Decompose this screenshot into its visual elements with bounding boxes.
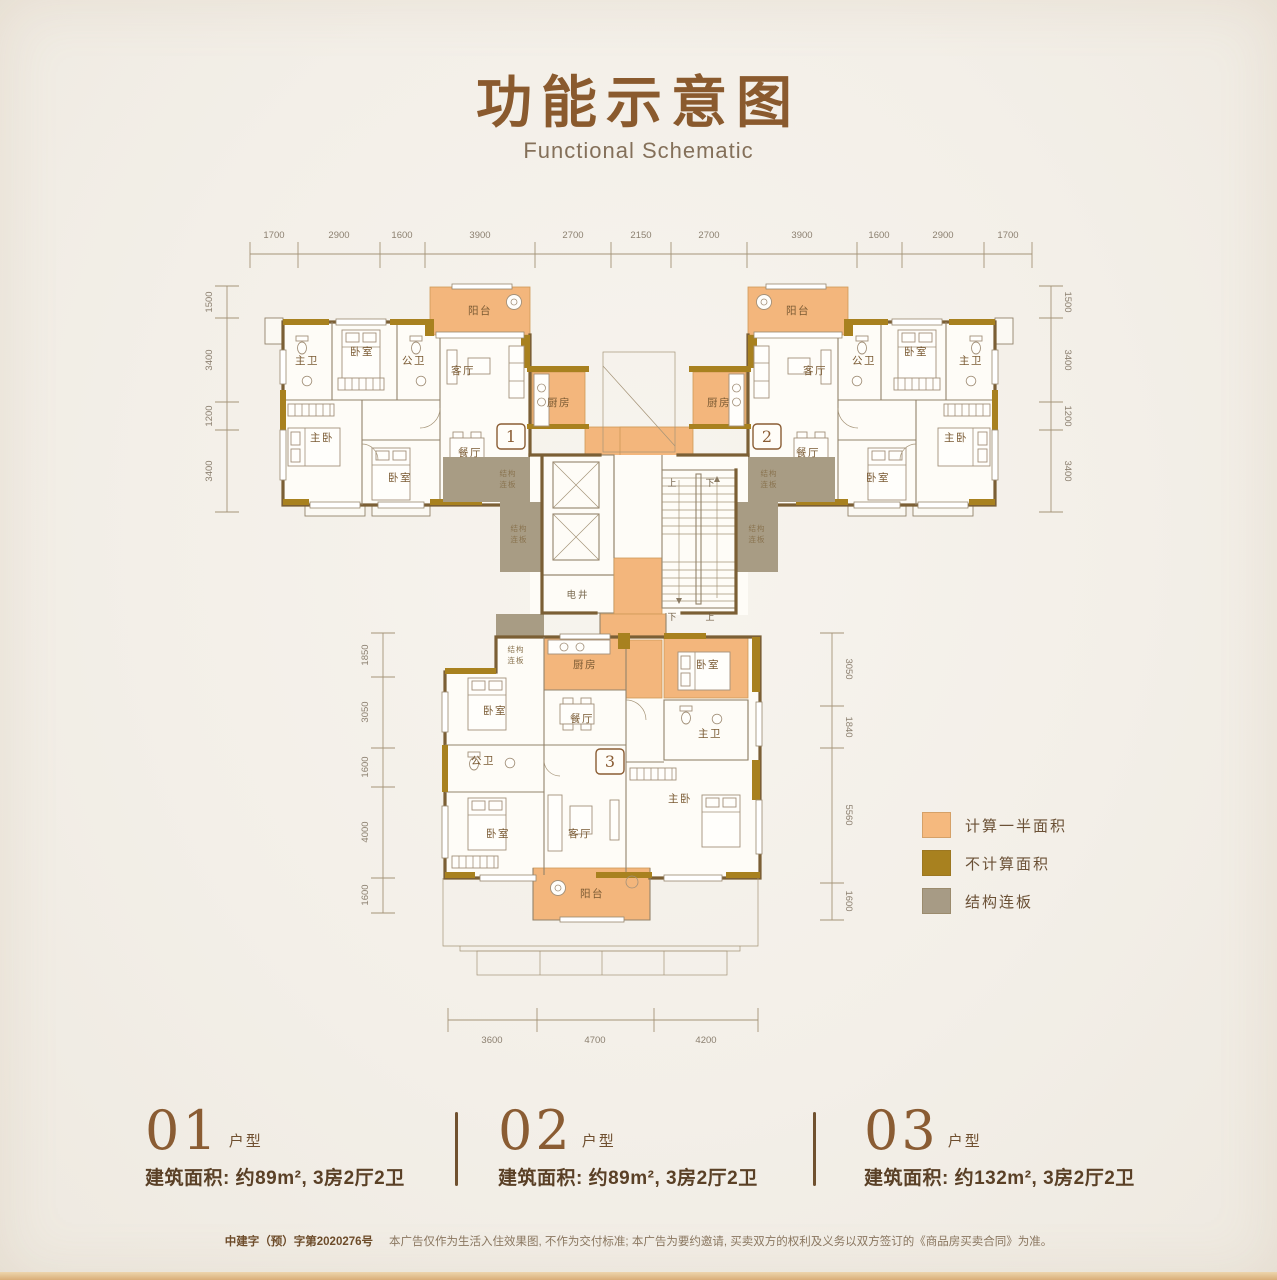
- svg-text:2900: 2900: [932, 230, 953, 241]
- unit-area-line: 建筑面积: 约89m², 3房2厅2卫: [145, 1163, 405, 1190]
- svg-text:公卫: 公卫: [402, 355, 426, 367]
- svg-text:3900: 3900: [469, 230, 490, 241]
- svg-text:1500: 1500: [204, 291, 215, 312]
- svg-text:3400: 3400: [1062, 460, 1073, 481]
- svg-text:2700: 2700: [562, 230, 583, 241]
- svg-text:客厅: 客厅: [568, 827, 592, 840]
- svg-text:1700: 1700: [263, 230, 284, 241]
- top-dimension-line: 1700 2900 1600 3900 2700 2150 2700 3900 …: [250, 230, 1032, 268]
- svg-text:3400: 3400: [1062, 349, 1073, 370]
- left-upper-dimension-line: 1500 3400 1200 3400: [204, 286, 239, 512]
- svg-text:厨房: 厨房: [573, 658, 597, 671]
- svg-text:连板: 连板: [511, 534, 528, 544]
- legend: 计算一半面积 不计算面积 结构连板: [922, 812, 1067, 926]
- right-upper-dimension-line: 1500 3400 1200 3400: [1039, 286, 1073, 512]
- unit-number: 03: [864, 1104, 939, 1158]
- svg-text:主卧: 主卧: [310, 431, 334, 444]
- svg-text:1840: 1840: [843, 716, 854, 737]
- svg-text:下: 下: [667, 612, 676, 622]
- svg-text:3400: 3400: [204, 349, 215, 370]
- svg-text:上: 上: [667, 478, 676, 488]
- legend-item-not-counted: 不计算面积: [922, 850, 1067, 876]
- half-area-swatch: [922, 812, 951, 838]
- unit-03-info: 03 户型 建筑面积: 约132m², 3房2厅2卫: [864, 1104, 1135, 1190]
- unit-type-suffix: 户型: [582, 1130, 616, 1151]
- unit-2-badge: 2: [753, 424, 781, 449]
- svg-text:主卧: 主卧: [668, 792, 692, 805]
- page: 功能示意图 Functional Schematic: [0, 0, 1277, 1280]
- unit-info-section: 01 户型 建筑面积: 约89m², 3房2厅2卫 02 户型 建筑面积: 约8…: [0, 1104, 1277, 1196]
- right-lower-dimension-line: 3050 1840 5560 1600: [820, 633, 854, 920]
- svg-text:1600: 1600: [360, 756, 371, 777]
- bottom-dimension-line: 3600 4700 4200: [448, 1008, 758, 1046]
- svg-text:3050: 3050: [843, 658, 854, 679]
- left-lower-dimension-line: 1850 3050 1600 4000 1600: [360, 633, 395, 913]
- svg-text:连板: 连板: [761, 479, 778, 489]
- svg-text:客厅: 客厅: [803, 364, 827, 377]
- disclaimer: 中建字（预）字第2020276号本广告仅作为生活入住效果图, 不作为交付标准; …: [0, 1233, 1277, 1249]
- disclaimer-text: 本广告仅作为生活入住效果图, 不作为交付标准; 本广告为要约邀请, 买卖双方的权…: [389, 1236, 1052, 1248]
- legend-item-half-area: 计算一半面积: [922, 812, 1067, 838]
- svg-text:阳台: 阳台: [786, 304, 810, 317]
- svg-text:结构: 结构: [508, 644, 525, 654]
- svg-text:1850: 1850: [360, 644, 371, 665]
- svg-text:卧室: 卧室: [483, 704, 507, 717]
- svg-text:连板: 连板: [508, 655, 525, 665]
- unit-3-badge: 3: [596, 749, 624, 774]
- unit-divider: [455, 1112, 458, 1186]
- svg-text:1600: 1600: [868, 230, 889, 241]
- svg-text:餐厅: 餐厅: [458, 446, 482, 459]
- svg-text:厨房: 厨房: [547, 396, 571, 409]
- svg-text:2700: 2700: [698, 230, 719, 241]
- svg-text:3400: 3400: [204, 460, 215, 481]
- svg-text:阳台: 阳台: [468, 304, 492, 317]
- legend-label: 计算一半面积: [965, 815, 1067, 836]
- bottom-edge-strip: [0, 1272, 1277, 1280]
- unit-type-suffix: 户型: [948, 1130, 982, 1151]
- unit-3-plan: [442, 633, 762, 975]
- unit-area-line: 建筑面积: 约132m², 3房2厅2卫: [864, 1163, 1135, 1190]
- svg-text:2150: 2150: [630, 230, 651, 241]
- svg-text:2: 2: [762, 427, 772, 446]
- unit-divider: [813, 1112, 816, 1186]
- legend-label: 结构连板: [965, 891, 1033, 912]
- svg-text:卧室: 卧室: [904, 345, 928, 358]
- unit-02-info: 02 户型 建筑面积: 约89m², 3房2厅2卫: [498, 1104, 758, 1190]
- unit-area-line: 建筑面积: 约89m², 3房2厅2卫: [498, 1163, 758, 1190]
- svg-text:厨房: 厨房: [707, 396, 731, 409]
- svg-text:1600: 1600: [391, 230, 412, 241]
- svg-text:3600: 3600: [481, 1035, 502, 1046]
- svg-text:1500: 1500: [1062, 291, 1073, 312]
- svg-text:2900: 2900: [328, 230, 349, 241]
- unit-number: 01: [145, 1104, 220, 1158]
- svg-text:3: 3: [605, 752, 615, 771]
- svg-text:餐厅: 餐厅: [796, 446, 820, 459]
- svg-text:5560: 5560: [843, 804, 854, 825]
- svg-text:主卫: 主卫: [698, 728, 722, 740]
- floor-plan-svg: 1700 2900 1600 3900 2700 2150 2700 3900 …: [0, 0, 1277, 1280]
- svg-text:4200: 4200: [695, 1035, 716, 1046]
- not-counted-swatch: [922, 850, 951, 876]
- svg-text:卧室: 卧室: [696, 658, 720, 671]
- svg-text:电井: 电井: [566, 589, 589, 601]
- svg-text:连板: 连板: [749, 534, 766, 544]
- permit-number: 中建字（预）字第2020276号: [225, 1236, 373, 1248]
- svg-text:1: 1: [506, 427, 516, 446]
- svg-text:卧室: 卧室: [486, 827, 510, 840]
- svg-text:1200: 1200: [1062, 405, 1073, 426]
- svg-text:4000: 4000: [360, 821, 371, 842]
- svg-text:结构: 结构: [761, 468, 778, 478]
- svg-text:主卫: 主卫: [959, 355, 983, 367]
- svg-text:1600: 1600: [843, 890, 854, 911]
- legend-item-structural-slab: 结构连板: [922, 888, 1067, 914]
- svg-text:公卫: 公卫: [852, 355, 876, 367]
- svg-text:客厅: 客厅: [451, 364, 475, 377]
- svg-text:结构: 结构: [749, 523, 766, 533]
- svg-text:1200: 1200: [204, 405, 215, 426]
- svg-text:卧室: 卧室: [866, 471, 890, 484]
- svg-text:阳台: 阳台: [580, 887, 604, 900]
- svg-text:主卧: 主卧: [944, 431, 968, 444]
- svg-text:3900: 3900: [791, 230, 812, 241]
- svg-text:3050: 3050: [360, 701, 371, 722]
- svg-text:1600: 1600: [360, 884, 371, 905]
- svg-text:1700: 1700: [997, 230, 1018, 241]
- svg-text:下: 下: [705, 478, 714, 488]
- svg-text:上: 上: [705, 612, 714, 622]
- svg-text:卧室: 卧室: [350, 345, 374, 358]
- svg-text:结构: 结构: [500, 468, 517, 478]
- legend-label: 不计算面积: [965, 853, 1050, 874]
- svg-text:卧室: 卧室: [388, 471, 412, 484]
- svg-text:结构: 结构: [511, 523, 528, 533]
- svg-text:连板: 连板: [500, 479, 517, 489]
- svg-text:4700: 4700: [584, 1035, 605, 1046]
- unit-1-badge: 1: [497, 424, 525, 449]
- structural-slab-swatch: [922, 888, 951, 914]
- unit-number: 02: [498, 1104, 573, 1158]
- svg-text:主卫: 主卫: [295, 355, 319, 367]
- svg-text:公卫: 公卫: [471, 755, 495, 767]
- unit-01-info: 01 户型 建筑面积: 约89m², 3房2厅2卫: [145, 1104, 405, 1190]
- unit-type-suffix: 户型: [229, 1130, 263, 1151]
- svg-text:餐厅: 餐厅: [570, 712, 594, 725]
